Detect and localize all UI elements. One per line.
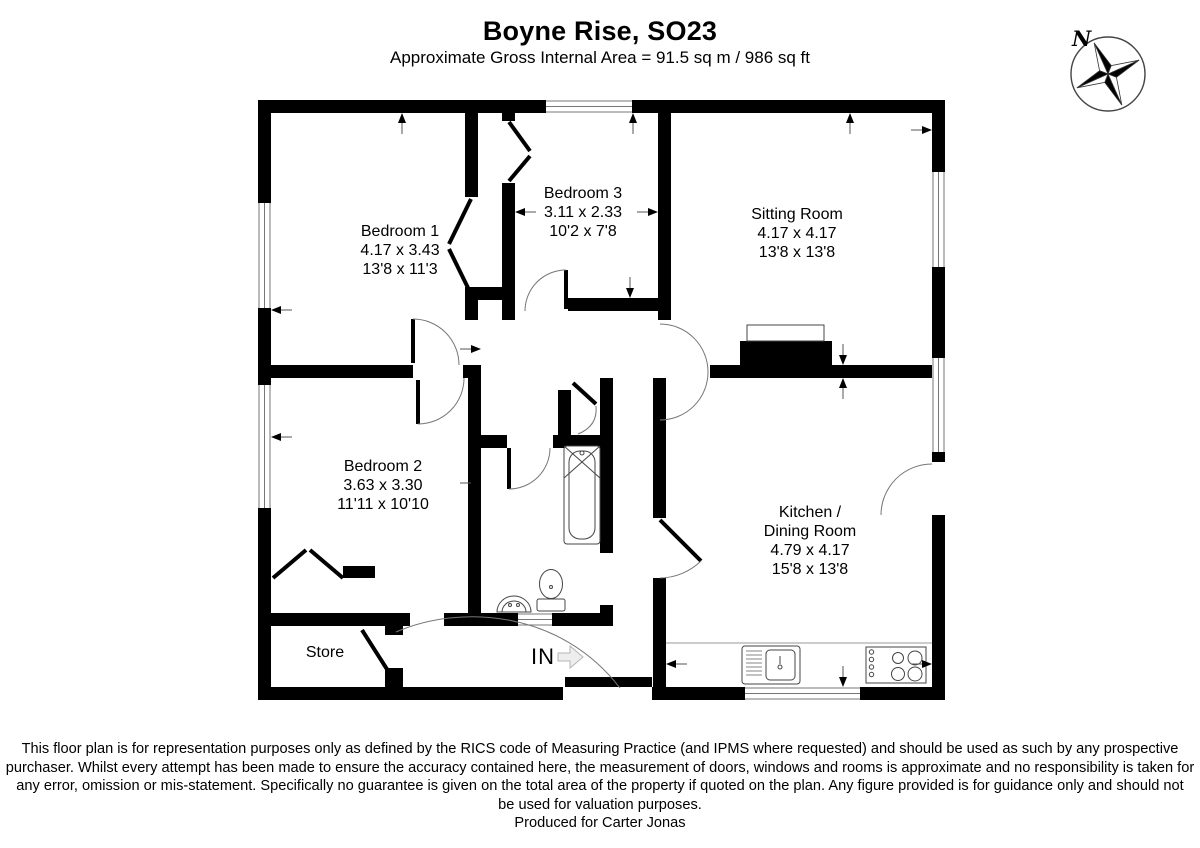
room-name: Bedroom 3 xyxy=(544,184,622,203)
floor-plan-graphic xyxy=(0,0,1200,848)
sink-icon xyxy=(497,596,531,612)
room-name: Kitchen / xyxy=(764,503,856,522)
north-label: N xyxy=(1072,26,1091,51)
floor-plan-page: Boyne Rise, SO23 Approximate Gross Inter… xyxy=(0,0,1200,848)
room-size-imperial: 13'8 x 13'8 xyxy=(751,243,843,262)
room-size-imperial: 11'11 x 10'10 xyxy=(337,495,429,514)
room-name: Bedroom 2 xyxy=(337,457,429,476)
room-name: Bedroom 1 xyxy=(360,222,439,241)
room-size-imperial: 13'8 x 11'3 xyxy=(360,260,439,279)
footer-line: any error, omission or mis-statement. Sp… xyxy=(0,777,1200,796)
fixtures-layer xyxy=(497,325,932,684)
room-size-metric: 4.17 x 3.43 xyxy=(360,241,439,260)
fireplace-icon xyxy=(747,325,824,341)
entrance-label: IN xyxy=(531,644,555,670)
room-size-metric: 4.79 x 4.17 xyxy=(764,541,856,560)
room-name: Sitting Room xyxy=(751,205,843,224)
footer-line: be used for valuation purposes. xyxy=(0,796,1200,815)
room-size-metric: 3.11 x 2.33 xyxy=(544,203,622,222)
room-label-sitting-room: Sitting Room 4.17 x 4.17 13'8 x 13'8 xyxy=(751,205,843,262)
bath-icon xyxy=(564,446,600,544)
room-label-bedroom3: Bedroom 3 3.11 x 2.33 10'2 x 7'8 xyxy=(544,184,622,241)
room-label-store: Store xyxy=(306,644,344,662)
footer-line: purchaser. Whilst every attempt has been… xyxy=(0,759,1200,778)
footer-credit: Produced for Carter Jonas xyxy=(0,814,1200,833)
room-size-metric: 4.17 x 4.17 xyxy=(751,224,843,243)
hob-icon xyxy=(866,647,926,683)
toilet-icon xyxy=(537,570,565,612)
room-label-bedroom1: Bedroom 1 4.17 x 3.43 13'8 x 11'3 xyxy=(360,222,439,279)
kitchen-sink-icon xyxy=(742,646,800,684)
footer-line: This floor plan is for representation pu… xyxy=(0,740,1200,759)
room-size-imperial: 10'2 x 7'8 xyxy=(544,222,622,241)
room-label-kitchen: Kitchen / Dining Room 4.79 x 4.17 15'8 x… xyxy=(764,503,856,579)
room-label-bedroom2: Bedroom 2 3.63 x 3.30 11'11 x 10'10 xyxy=(337,457,429,514)
room-name: Dining Room xyxy=(764,522,856,541)
footer-disclaimer: This floor plan is for representation pu… xyxy=(0,740,1200,833)
room-size-imperial: 15'8 x 13'8 xyxy=(764,560,856,579)
room-size-metric: 3.63 x 3.30 xyxy=(337,476,429,495)
